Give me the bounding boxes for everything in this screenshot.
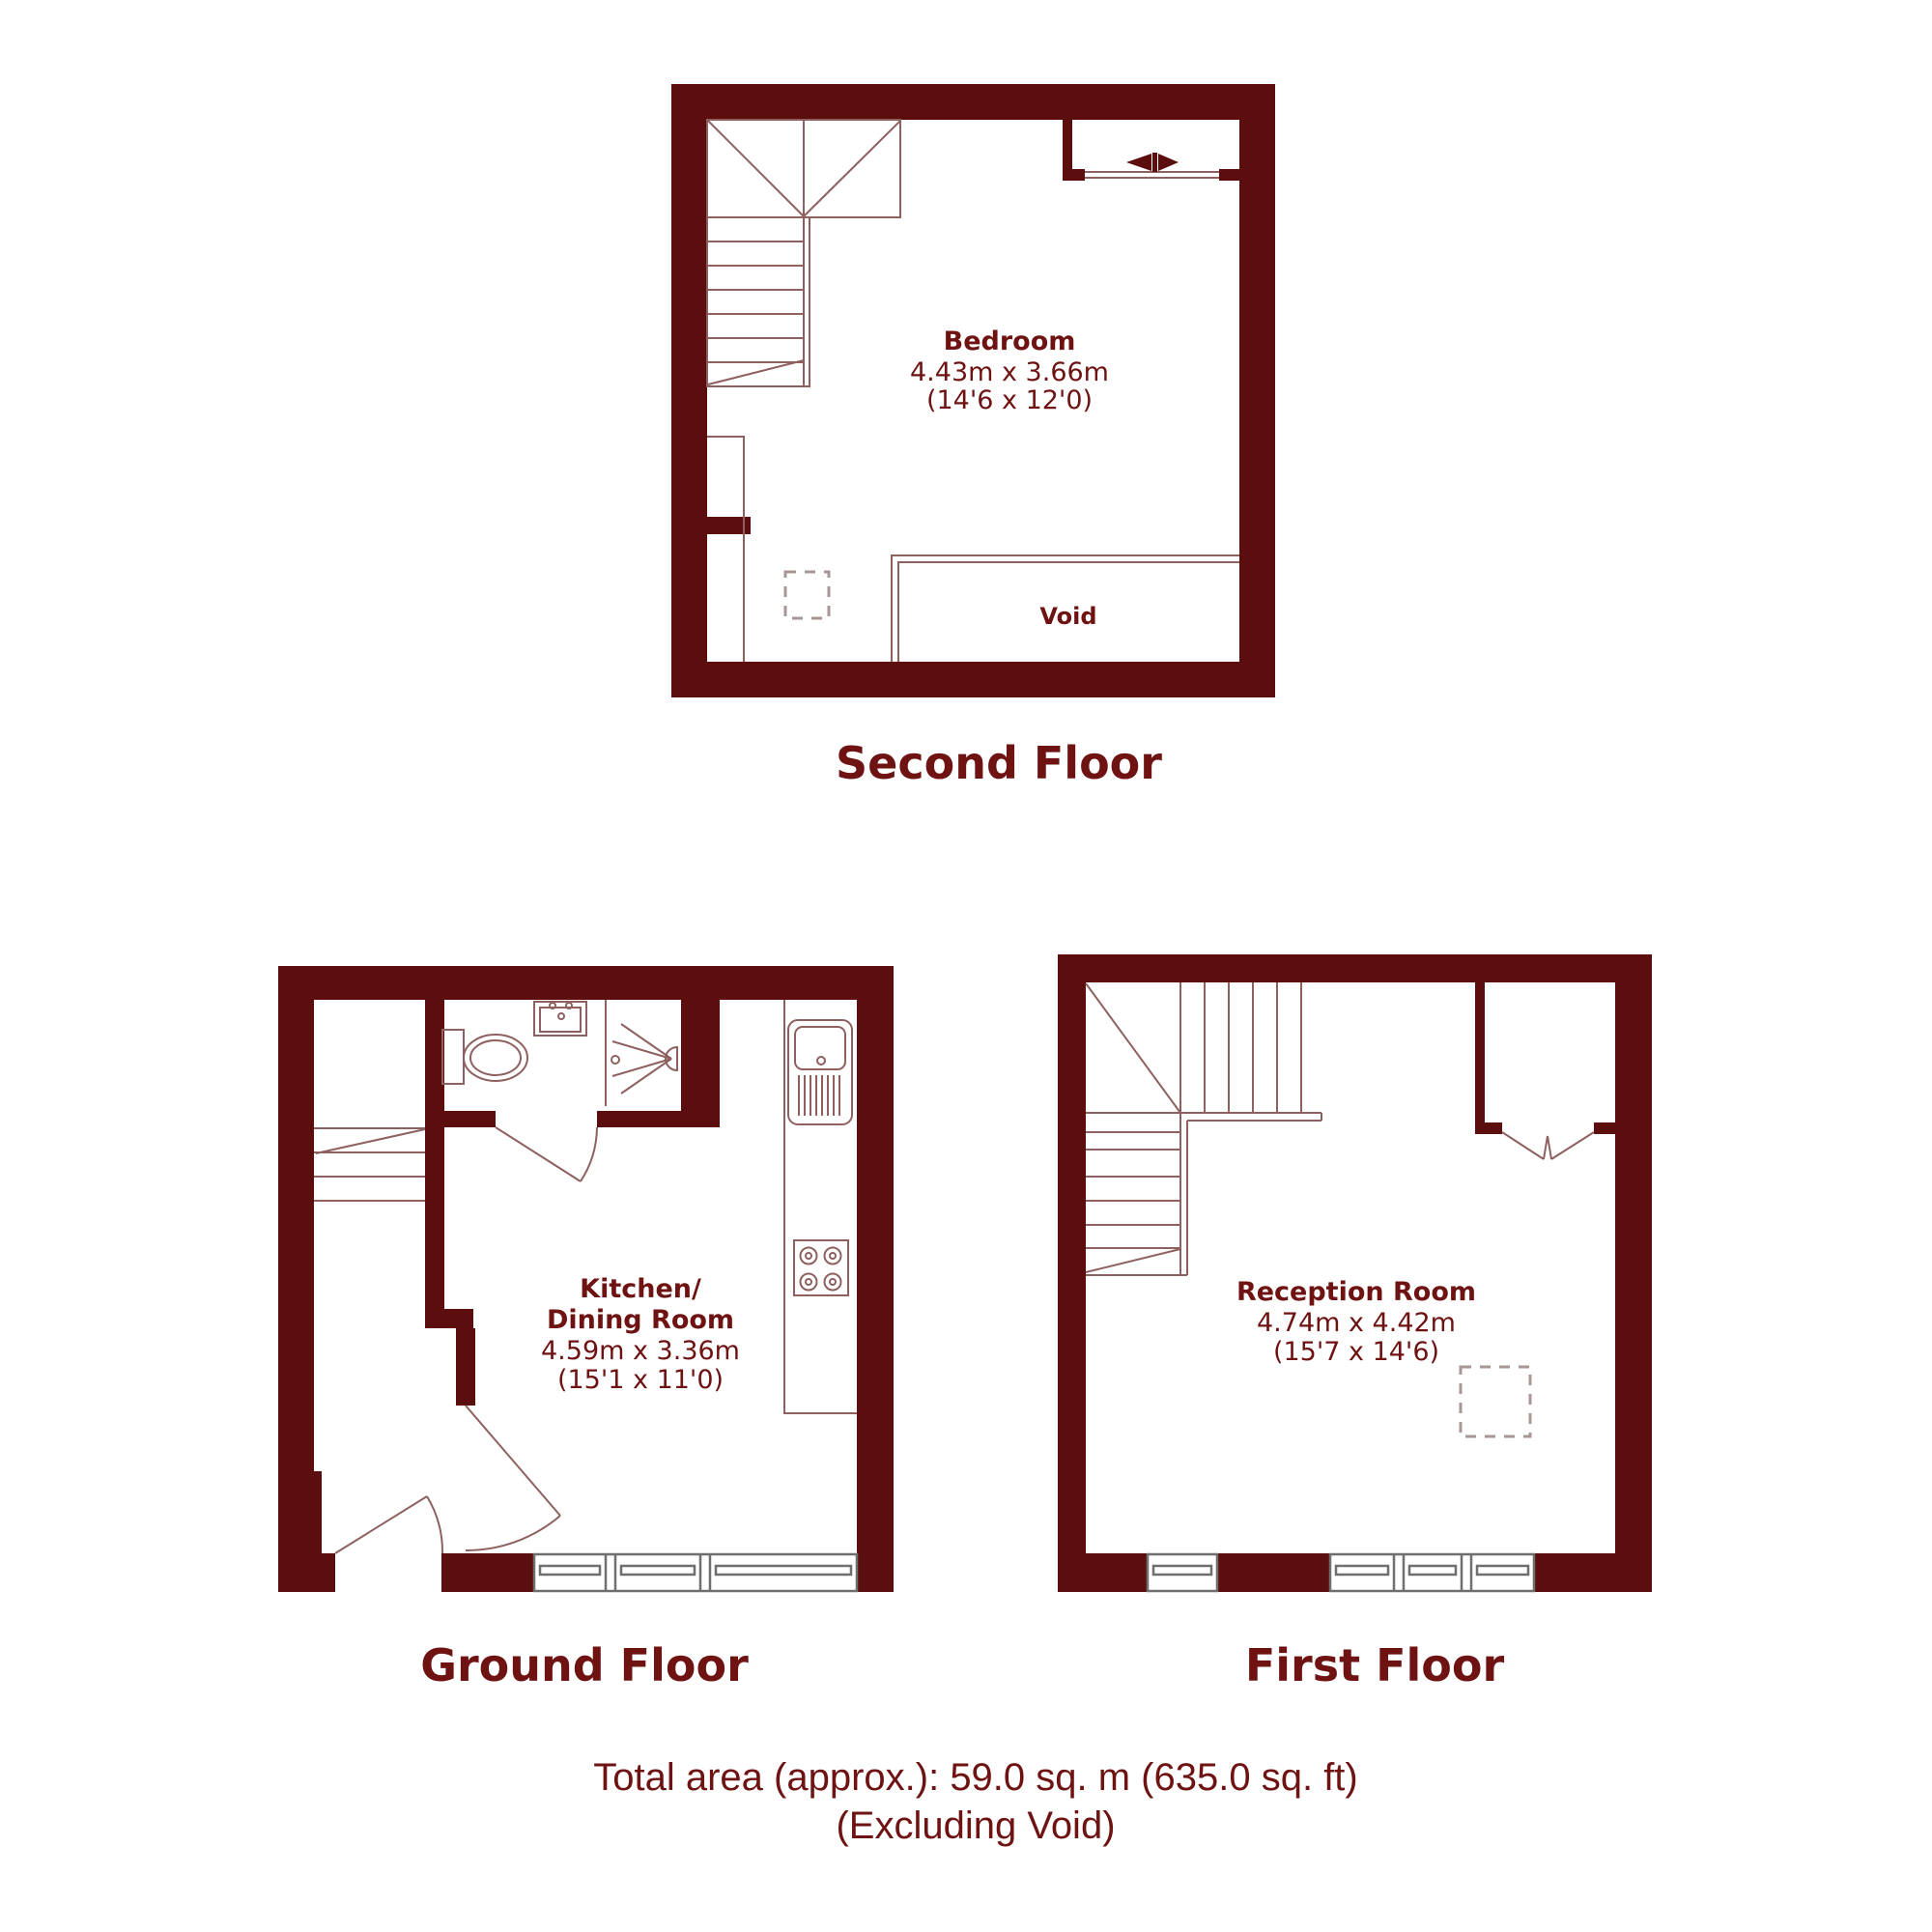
- hob-icon: [794, 1240, 848, 1295]
- first-floor-windows: [1148, 1554, 1534, 1591]
- first-floor-walls: [1058, 954, 1652, 1592]
- dashed-skylight-marker: [785, 572, 829, 618]
- shower-icon: [606, 1000, 677, 1106]
- chimney-breast-line: [707, 437, 744, 662]
- bathroom-door-arc: [496, 1127, 597, 1181]
- first-floor-stairs-icon: [1086, 982, 1321, 1275]
- reception-name: Reception Room: [1236, 1277, 1476, 1307]
- kitchen-dims-metric: 4.59m x 3.36m: [541, 1336, 740, 1366]
- void-area: Void: [892, 555, 1239, 662]
- void-label: Void: [1039, 603, 1096, 630]
- kitchen-dims-imperial: (15'1 x 11'0): [557, 1365, 724, 1395]
- ground-floor-plan: Kitchen/ Dining Room 4.59m x 3.36m (15'1…: [278, 966, 894, 1691]
- ground-floor-label: Ground Floor: [420, 1639, 749, 1691]
- kitchen-sink-icon: [788, 1020, 852, 1124]
- closet-double-doors: [1502, 1132, 1594, 1159]
- reception-dims-metric: 4.74m x 4.42m: [1257, 1308, 1456, 1338]
- kitchen-name-line1: Kitchen/: [580, 1274, 701, 1304]
- kitchen-dining-label: Kitchen/ Dining Room 4.59m x 3.36m (15'1…: [541, 1274, 740, 1395]
- hall-door-arc: [466, 1406, 560, 1550]
- bedroom-dims-imperial: (14'6 x 12'0): [926, 385, 1093, 415]
- excluding-void-text: (Excluding Void): [836, 1804, 1115, 1847]
- second-floor-plan: Void Bedroom 4.43m x 3.66m (14'6 x 12'0)…: [671, 84, 1275, 789]
- bedroom-dims-metric: 4.43m x 3.66m: [910, 357, 1109, 387]
- kitchen-name-line2: Dining Room: [547, 1305, 734, 1335]
- second-floor-label: Second Floor: [836, 737, 1162, 789]
- entrance-door-arc: [335, 1496, 442, 1553]
- sliding-door-icon: [1085, 153, 1219, 178]
- footer: Total area (approx.): 59.0 sq. m (635.0 …: [593, 1756, 1357, 1847]
- first-floor-plan: Reception Room 4.74m x 4.42m (15'7 x 14'…: [1058, 954, 1652, 1691]
- ground-floor-windows: [534, 1554, 857, 1591]
- basin-icon: [534, 1002, 586, 1036]
- hall-stairs-icon: [314, 1128, 425, 1201]
- bedroom-label: Bedroom 4.43m x 3.66m (14'6 x 12'0): [910, 327, 1109, 415]
- bedroom-name: Bedroom: [944, 327, 1076, 356]
- second-floor-stairs-icon: [707, 120, 900, 386]
- reception-dims-imperial: (15'7 x 14'6): [1273, 1337, 1439, 1367]
- floorplan-drawing: Void Bedroom 4.43m x 3.66m (14'6 x 12'0)…: [0, 0, 1932, 1932]
- dashed-skylight-marker-first: [1461, 1367, 1530, 1436]
- floorplan-page: Void Bedroom 4.43m x 3.66m (14'6 x 12'0)…: [0, 0, 1932, 1932]
- first-floor-label: First Floor: [1245, 1639, 1505, 1691]
- reception-room-label: Reception Room 4.74m x 4.42m (15'7 x 14'…: [1236, 1277, 1476, 1367]
- total-area-text: Total area (approx.): 59.0 sq. m (635.0 …: [593, 1756, 1357, 1799]
- toilet-icon: [442, 1030, 527, 1084]
